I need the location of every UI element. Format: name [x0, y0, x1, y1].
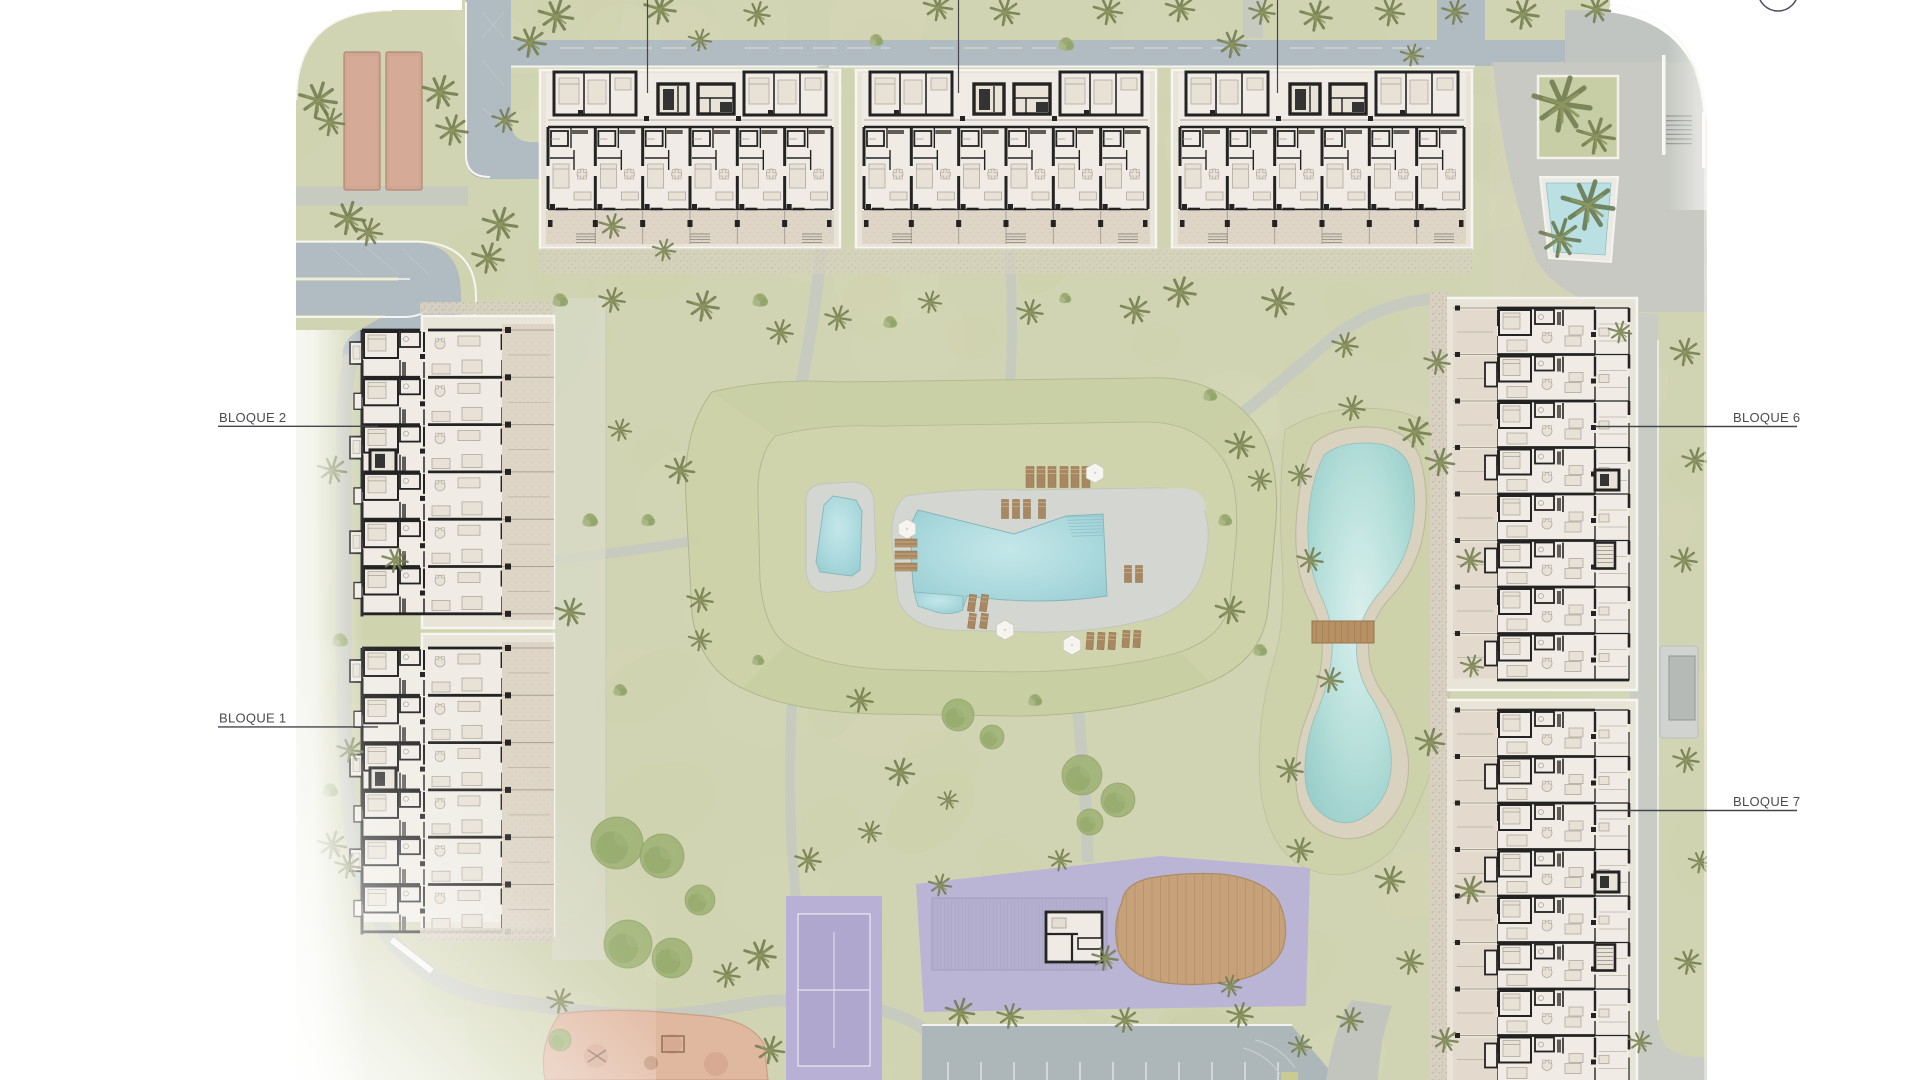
svg-text:BLOQUE 1: BLOQUE 1 — [219, 711, 286, 726]
svg-text:BLOQUE 2: BLOQUE 2 — [219, 410, 286, 425]
svg-text:BLOQUE 7: BLOQUE 7 — [1733, 794, 1800, 809]
svg-text:BLOQUE 6: BLOQUE 6 — [1733, 410, 1800, 425]
